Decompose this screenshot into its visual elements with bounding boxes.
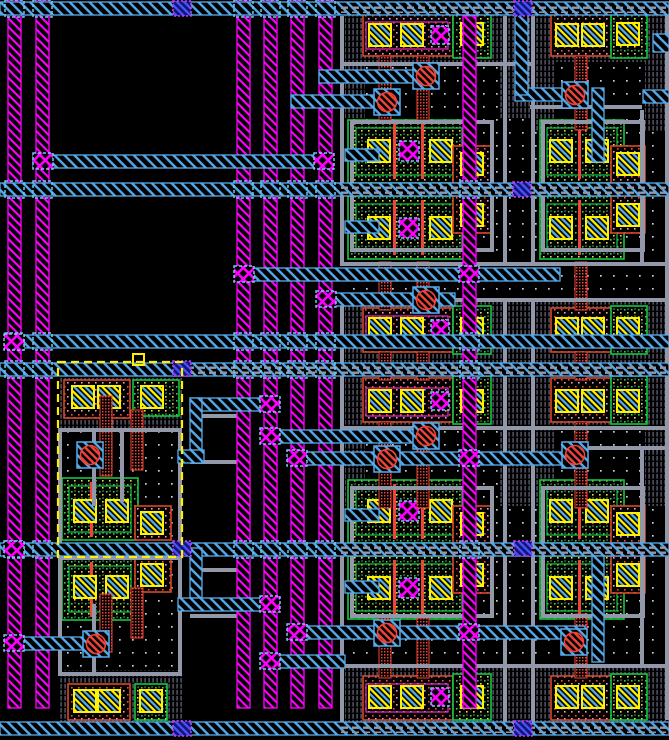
contact-cut [140,690,162,712]
metal-bus-wire [264,430,434,443]
via-m2-cut [234,266,254,282]
metal1-wire [340,664,669,668]
via-m2-cut [459,450,479,466]
poly-gate-line [393,200,396,255]
metal-bus-wire [345,221,379,233]
poly-gate-line [578,124,581,179]
layout-editor-viewport[interactable] [0,0,669,740]
contact-cut [550,140,572,162]
contact-cut [586,217,608,239]
contact-cut [74,690,96,712]
metal2-power-rail [8,0,21,708]
via-m2-cut [399,578,419,598]
via-m2-cut [4,635,24,651]
metal1-wire [531,16,535,262]
metal-bus-wire [345,149,379,161]
poly-gate-line [393,124,396,179]
via-m2-cut [260,396,280,412]
contact-cut [617,153,639,175]
metal-bus-wire [643,90,669,103]
contact-cut [430,217,452,239]
contact-cut [401,390,423,412]
contact-cut [106,500,128,522]
via-m2-cut [260,596,280,612]
metal2-power-rail [463,16,476,708]
metal-bus-wire [237,268,560,281]
contact-cut [617,204,639,226]
contact-cut [74,576,96,598]
poly-contact-cut [81,446,100,465]
via-m2-cut [399,141,419,161]
poly-strip [575,262,587,310]
metal1-dash-overlay [340,545,666,554]
layout-canvas[interactable] [0,0,669,740]
contact-cut [617,686,639,708]
contact-cut [430,577,452,599]
contact-cut [141,386,163,408]
poly-contact-cut [417,427,436,446]
via-m2-cut [4,541,24,557]
via-m2-cut [431,392,449,410]
metal1-dash-overlay [340,4,666,13]
poly-strip [131,588,143,638]
contact-cut [369,390,391,412]
contact-cut [550,577,572,599]
via-m2-cut [459,624,479,640]
metal2-power-rail [36,0,49,708]
contact-cut [550,500,572,522]
via-m2-cut [287,624,307,640]
contact-cut [617,564,639,586]
via-m2-cut [431,26,449,44]
poly-contact-cut [87,635,106,654]
contact-cut [582,24,604,46]
contact-cut [401,686,423,708]
contact-cut [401,24,423,46]
poly-gate-line [421,200,424,255]
contact-cut [556,24,578,46]
metal-bus-wire [515,15,528,95]
metal-bus-wire [345,509,379,521]
metal1-wire [503,16,507,262]
via-m2-cut [4,334,24,350]
metal-bus-wire [345,581,379,593]
via-m2-cut [260,428,280,444]
via-m2-m3 [173,1,191,16]
contact-cut [617,390,639,412]
metal1-wire [530,262,669,266]
poly-contact-cut [565,633,584,652]
metal-bus-wire [8,335,669,348]
contact-cut [369,686,391,708]
metal-bus-wire [291,452,585,465]
via-m2-cut [459,266,479,282]
via-m2-cut [399,501,419,521]
via-m2-m3 [173,721,191,736]
contact-cut [369,24,391,46]
via-m2-cut [260,653,280,669]
poly-gate-line [393,560,396,615]
contact-cut [582,686,604,708]
poly-gate-line [421,124,424,179]
contact-cut [556,686,578,708]
metal1-dash-overlay [340,185,666,194]
via-m2-cut [399,218,419,238]
metal1-wire [120,428,124,502]
contact-cut [430,500,452,522]
metal-bus-wire [291,626,585,639]
poly-gate-line [578,200,581,255]
metal1-wire [190,614,242,618]
metal1-dash-overlay [340,724,666,733]
metal1-wire [340,16,344,262]
poly-contact-cut [417,291,436,310]
poly-contact-cut [378,93,397,112]
contact-cut [550,217,572,239]
contact-cut [72,386,94,408]
poly-contact-cut [417,67,436,86]
metal-bus-wire [33,155,331,168]
contact-cut [141,512,163,534]
poly-contact-cut [566,446,585,465]
via-m2-cut [316,291,336,307]
poly-gate-line [578,560,581,615]
poly-gate-line [421,560,424,615]
contact-cut [582,390,604,412]
metal-bus-wire [653,34,669,52]
via-m2-cut [287,450,307,466]
contact-cut [586,500,608,522]
metal1-wire [58,672,182,676]
poly-gate-line [393,484,396,539]
contact-cut [141,564,163,586]
via-m2-m3 [514,721,532,736]
contact-cut [98,690,120,712]
metal-bus-wire [592,88,604,162]
poly-contact-cut [378,624,397,643]
via-m2-cut [33,153,53,169]
via-m2-m3 [514,541,532,556]
poly-strip [131,410,143,470]
metal-bus-wire [592,556,604,662]
poly-contact-cut [378,450,397,469]
via-m2-cut [314,153,334,169]
via-m2-cut [431,688,449,706]
contact-cut [617,513,639,535]
via-m2-m3 [514,1,532,16]
via-m2-m3 [513,182,531,197]
nwell-region [498,428,530,506]
metal1-wire [340,262,532,266]
contact-cut [430,140,452,162]
poly-contact-cut [566,86,585,105]
contact-cut [617,23,639,45]
contact-cut [556,390,578,412]
